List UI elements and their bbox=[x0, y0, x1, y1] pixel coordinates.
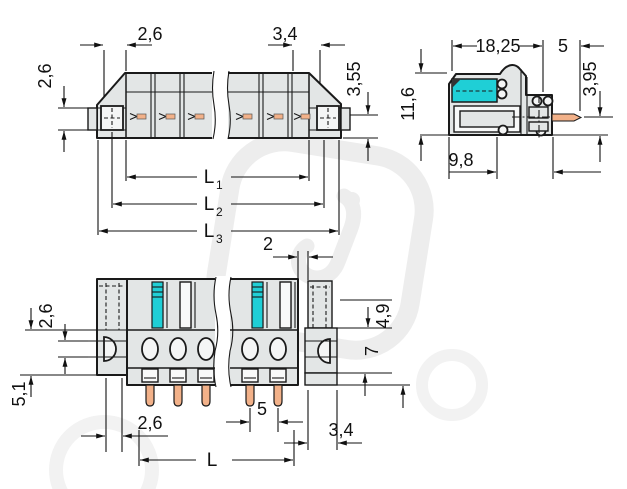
dim-side-pin-length: 5 bbox=[558, 36, 568, 56]
left-mounting-hole bbox=[101, 106, 123, 130]
solder-pin-side bbox=[552, 114, 581, 121]
dim-side-height: 11,6 bbox=[398, 87, 418, 121]
dim-front-opening-height: 2,6 bbox=[35, 63, 55, 88]
latch-strip bbox=[152, 282, 163, 328]
dim-front-L1-sub: 1 bbox=[216, 178, 223, 192]
right-flange bbox=[305, 281, 337, 385]
dim-side-depth: 18,25 bbox=[475, 36, 520, 56]
dim-front-right-offset: 3,4 bbox=[272, 24, 297, 44]
dim-front-left-offset: 2,6 bbox=[137, 24, 162, 44]
dim-bottom-gap: 2 bbox=[263, 234, 273, 254]
dim-bottom-pin-offset: 2,6 bbox=[137, 413, 162, 433]
front-view: 2,6 3,4 2,6 3,55 bbox=[35, 24, 378, 246]
dim-side-lower-depth: 9,8 bbox=[448, 150, 473, 170]
dim-front-L2-sub: 2 bbox=[216, 205, 223, 219]
dim-front-L1: L bbox=[204, 167, 215, 188]
dim-bottom-pitch: 5 bbox=[257, 399, 267, 419]
latch-strip bbox=[252, 282, 263, 328]
left-flange bbox=[97, 279, 127, 375]
dim-front-pin-to-bottom: 3,55 bbox=[344, 61, 364, 96]
watermark-glyph bbox=[298, 196, 353, 278]
dim-bottom-flange-height: 7 bbox=[362, 346, 382, 356]
technical-drawing: 2,6 3,4 2,6 3,55 bbox=[0, 0, 627, 489]
bottom-break-lines bbox=[214, 276, 233, 388]
dim-front-L2: L bbox=[204, 194, 215, 215]
dim-front-L3-sub: 3 bbox=[216, 232, 223, 246]
dim-bottom-length: L bbox=[207, 450, 218, 471]
dim-bottom-hole-height: 2,6 bbox=[36, 303, 56, 328]
dim-side-pin-drop: 3,95 bbox=[580, 61, 600, 96]
break-lines bbox=[212, 70, 230, 141]
front-view-body bbox=[88, 70, 350, 141]
right-ear bbox=[341, 108, 350, 130]
dim-bottom-upper-height: 4,9 bbox=[373, 303, 393, 328]
watermark-arc-right bbox=[422, 355, 482, 415]
dim-bottom-flange-width: 3,4 bbox=[328, 420, 353, 440]
side-view: 18,25 5 3,95 11,6 9,8 bbox=[398, 36, 613, 179]
dim-bottom-foot-height: 5,1 bbox=[9, 381, 29, 406]
technical-drawing-page: 2,6 3,4 2,6 3,55 bbox=[0, 0, 627, 489]
dim-front-L3: L bbox=[204, 221, 215, 242]
right-mounting-hole bbox=[317, 106, 339, 130]
watermark-dot bbox=[344, 192, 360, 208]
left-ear bbox=[88, 108, 97, 130]
